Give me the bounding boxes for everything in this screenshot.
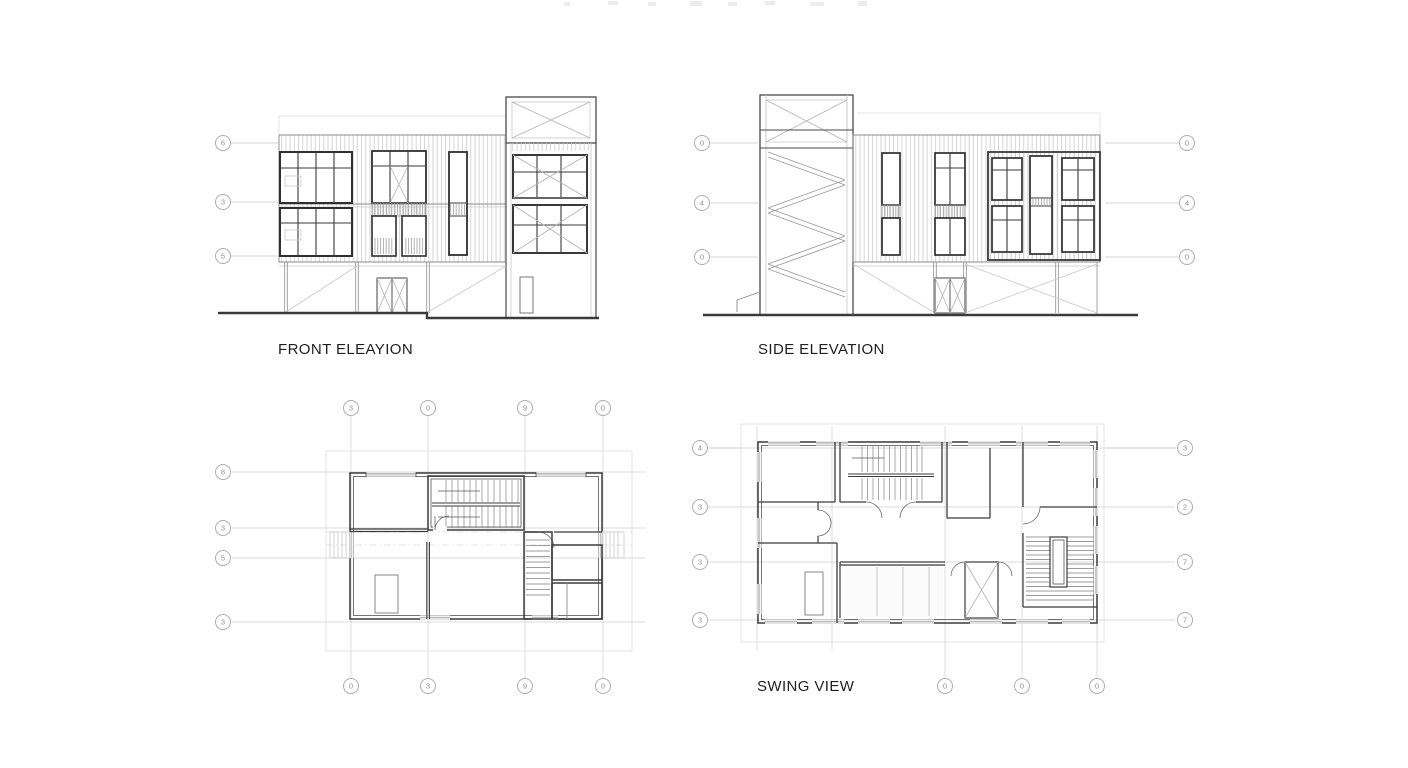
front-ground-floor: [279, 262, 506, 313]
grid-bubble-label: 0: [700, 139, 704, 148]
grid-bubble-label: 0: [1095, 682, 1099, 691]
plan-door-leaf: [375, 575, 398, 613]
grid-bubble: 7: [1178, 613, 1193, 628]
grid-bubble-label: 4: [1185, 199, 1189, 208]
grid-bubble: 6: [216, 136, 231, 151]
front-elevation-drawing: 6 3 5: [200, 80, 670, 380]
swing-view-panel: 4 3 3 3 3 2 7 7 0 0 0 SWING VIEW: [670, 390, 1215, 720]
grid-bubble-label: 9: [523, 404, 527, 413]
side-window-cluster: [988, 152, 1100, 260]
grid-bubble-label: 5: [221, 252, 225, 261]
drawing-sheet: { "sheet": { "background": "#ffffff", "i…: [0, 0, 1408, 768]
grid-bubble: 2: [1178, 500, 1193, 515]
side-ground-floor: [853, 262, 1100, 315]
grid-bubble: 0: [596, 401, 611, 416]
grid-bubble-label: 3: [698, 558, 702, 567]
grid-bubble: 0: [344, 679, 359, 694]
swing-top-right-room: [1023, 442, 1097, 524]
grid-bubble: 5: [216, 551, 231, 566]
plan-grid-lines: [232, 416, 645, 678]
swing-view-drawing: 4 3 3 3 3 2 7 7 0 0 0: [670, 390, 1215, 720]
grid-bubble-label: 7: [1183, 558, 1187, 567]
grid-bubble: 3: [421, 679, 436, 694]
swing-top-left-room: [758, 442, 835, 502]
grid-bubble-label: 6: [221, 139, 225, 148]
grid-bubble: 3: [693, 555, 708, 570]
grid-bubble-label: 3: [698, 503, 702, 512]
swing-shaft: [951, 562, 1012, 618]
grid-bubble: 0: [421, 401, 436, 416]
grid-bubble: 0: [695, 136, 710, 151]
grid-bubble: 0: [1090, 679, 1105, 694]
grid-bubble: 7: [1178, 555, 1193, 570]
plan-right-rooms: [552, 545, 602, 619]
front-elevation-panel: 6 3 5 FRONT ELEAYION: [200, 80, 670, 380]
grid-bubble-label: 3: [221, 524, 225, 533]
grid-bubble-label: 0: [1185, 253, 1189, 262]
parapet-outline: [857, 113, 1100, 135]
grid-bubble-label: 0: [601, 682, 605, 691]
grid-bubble-label: 3: [221, 618, 225, 627]
grid-bubble-label: 0: [700, 253, 704, 262]
grid-bubble-label: 0: [349, 682, 353, 691]
grid-bubble: 3: [1178, 441, 1193, 456]
grid-bubble: 9: [518, 679, 533, 694]
grid-bubble: 4: [693, 441, 708, 456]
grid-bubble-label: 3: [698, 616, 702, 625]
grid-bubble: 3: [216, 521, 231, 536]
grid-bubble-label: 3: [349, 404, 353, 413]
grid-bubble: 3: [344, 401, 359, 416]
grid-bubble: 0: [938, 679, 953, 694]
grid-bubble-label: 2: [1183, 503, 1187, 512]
side-window-mid: [935, 153, 965, 255]
grid-bubble: 5: [216, 249, 231, 264]
grid-bubble: 0: [1180, 250, 1195, 265]
grid-bubble-label: 0: [943, 682, 947, 691]
front-grid-bubbles: 6 3 5: [216, 136, 279, 264]
grid-bubble-label: 3: [426, 682, 430, 691]
front-window-left-bay: [280, 152, 352, 256]
grid-bubble-label: 4: [700, 199, 704, 208]
ground-line: [218, 313, 599, 318]
front-window-narrow: [449, 152, 467, 255]
plan-extent-outline: [326, 451, 632, 651]
grid-bubble: 0: [1015, 679, 1030, 694]
side-window-narrow: [882, 153, 900, 255]
grid-bubble-label: 3: [1183, 444, 1187, 453]
grid-bubble-label: 0: [1185, 139, 1189, 148]
grid-bubble: 3: [216, 615, 231, 630]
side-elevation-title: SIDE ELEVATION: [758, 341, 885, 358]
swing-hall-double-door: [818, 502, 831, 543]
grid-bubble: 0: [596, 679, 611, 694]
grid-bubble-label: 0: [1020, 682, 1024, 691]
swing-garage: [840, 562, 945, 618]
door-leaf: [805, 572, 823, 615]
floor-plan-panel: 3 0 9 0 8 3 5 3 0 3 9 0: [180, 390, 660, 710]
front-elevation-title: FRONT ELEAYION: [278, 341, 413, 358]
grid-bubble-label: 9: [523, 682, 527, 691]
grid-bubble: 8: [216, 465, 231, 480]
plan-stair-top: [428, 476, 524, 532]
grid-bubble: 0: [1180, 136, 1195, 151]
grid-bubble: 3: [216, 195, 231, 210]
grid-bubble-label: 4: [698, 444, 702, 453]
cropped-artifact-marks: [560, 0, 870, 10]
grid-bubble: 9: [518, 401, 533, 416]
grid-bubble-label: 7: [1183, 616, 1187, 625]
front-stair-tower: [506, 97, 596, 318]
side-elevation-drawing: 0 4 0 0 4 0: [690, 80, 1205, 380]
grid-bubble-label: 5: [221, 554, 225, 563]
side-elevation-panel: 0 4 0 0 4 0 SIDE ELEVATION: [690, 80, 1205, 380]
parapet-outline: [279, 116, 506, 135]
swing-bottom-left-room: [758, 543, 837, 623]
grid-bubble: 4: [695, 196, 710, 211]
floor-plan-drawing: 3 0 9 0 8 3 5 3 0 3 9 0: [180, 390, 660, 710]
grid-bubble: 0: [695, 250, 710, 265]
swing-stair-room: [840, 442, 942, 518]
entry-canopy: [737, 292, 760, 312]
side-stair-tower: [737, 95, 853, 315]
grid-bubble: 4: [1180, 196, 1195, 211]
grid-bubble-label: 0: [426, 404, 430, 413]
swing-stair-right: [1023, 533, 1097, 607]
grid-bubble: 3: [693, 500, 708, 515]
swing-view-title: SWING VIEW: [757, 678, 854, 695]
swing-top-mid-room: [947, 442, 990, 518]
grid-bubble-label: 8: [221, 468, 225, 477]
grid-bubble-label: 3: [221, 198, 225, 207]
grid-bubble: 3: [693, 613, 708, 628]
grid-bubble-label: 0: [601, 404, 605, 413]
